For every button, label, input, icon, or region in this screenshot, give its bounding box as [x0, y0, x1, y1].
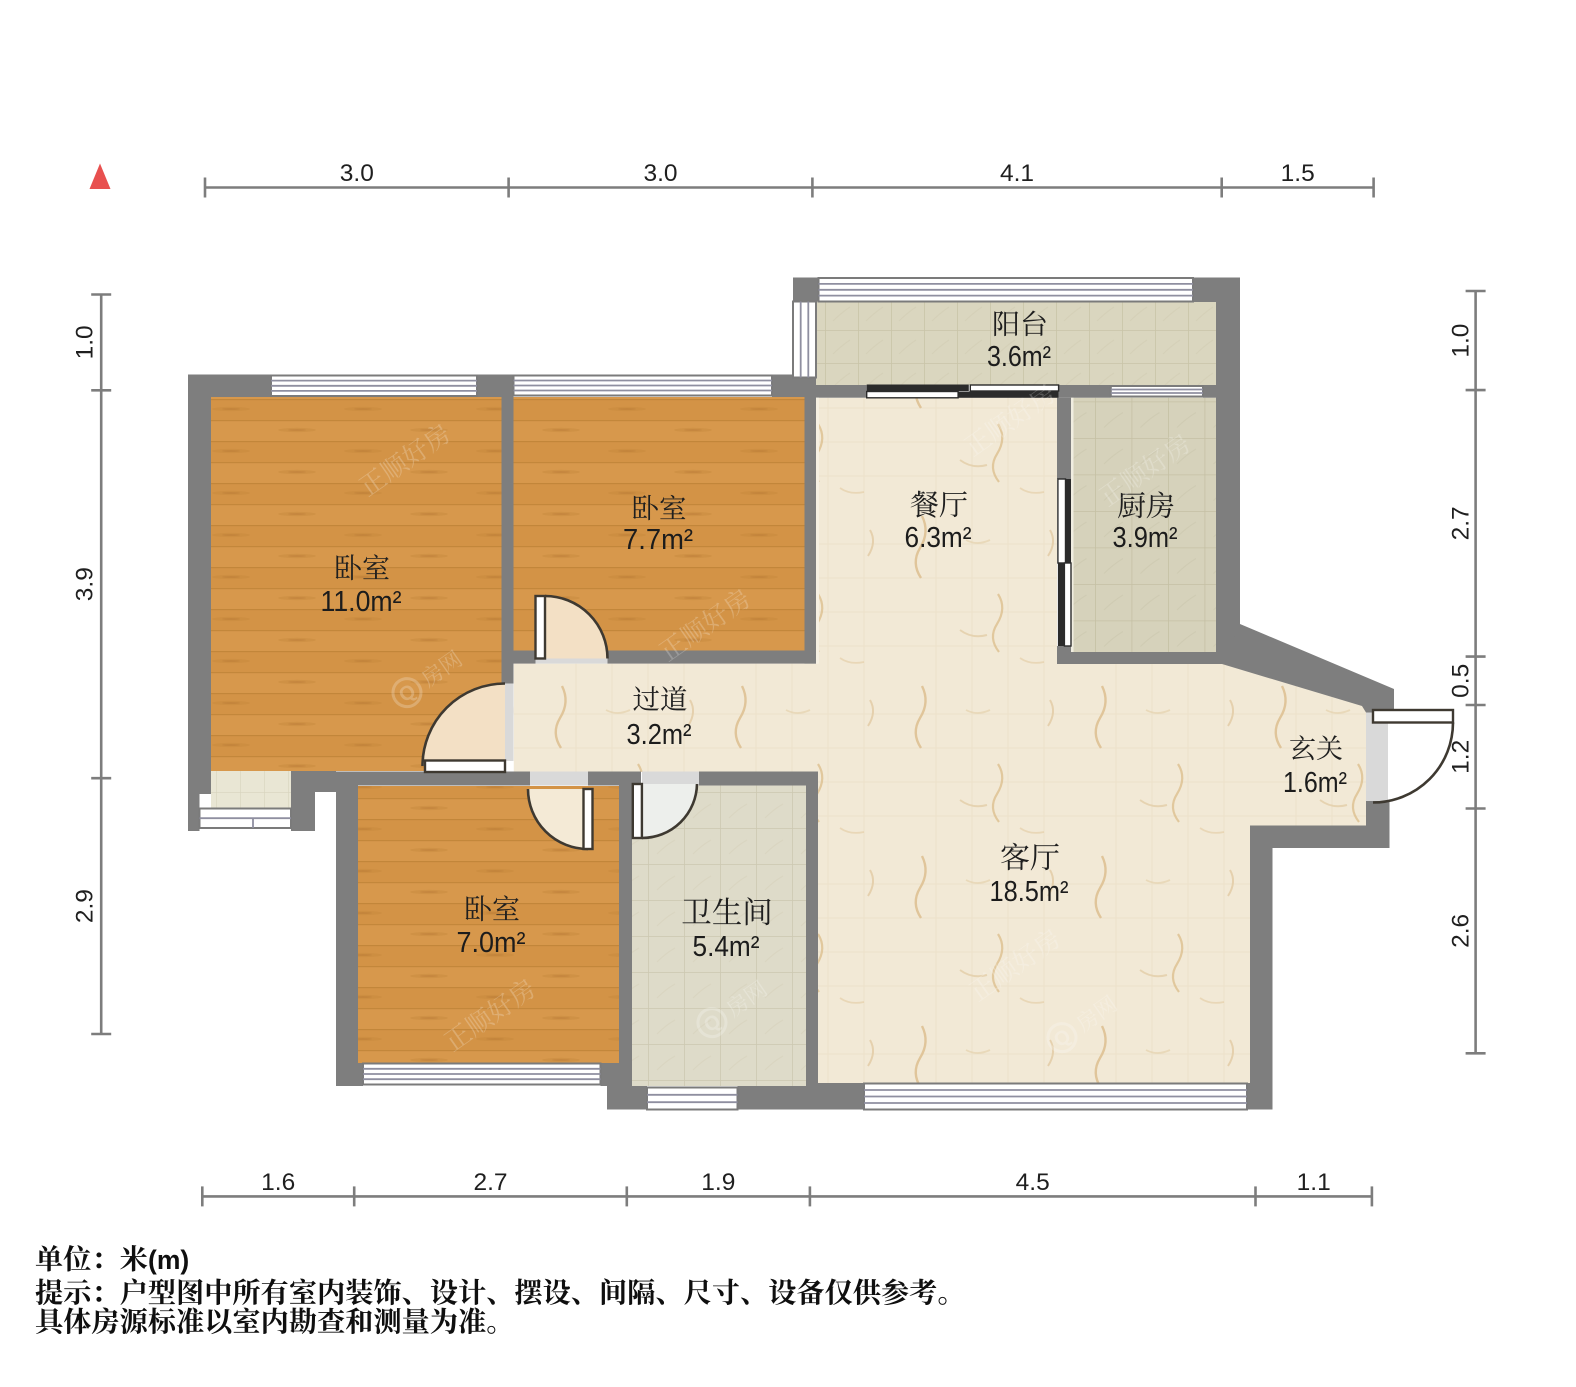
- svg-text:3.0: 3.0: [340, 160, 374, 187]
- svg-text:2.7: 2.7: [473, 1169, 507, 1196]
- svg-text:2.9: 2.9: [71, 889, 98, 923]
- svg-text:18.5m²: 18.5m²: [990, 876, 1069, 908]
- svg-text:4.5: 4.5: [1016, 1169, 1050, 1196]
- svg-text:11.0m²: 11.0m²: [321, 586, 402, 618]
- svg-text:1.2: 1.2: [1447, 740, 1474, 774]
- svg-text:1.0: 1.0: [1447, 324, 1474, 358]
- svg-text:3.9m²: 3.9m²: [1113, 522, 1178, 554]
- svg-text:3.2m²: 3.2m²: [627, 719, 692, 751]
- svg-text:5.4m²: 5.4m²: [693, 931, 760, 963]
- svg-text:4.1: 4.1: [1000, 160, 1034, 187]
- svg-text:1.6: 1.6: [261, 1169, 295, 1196]
- svg-text:(m): (m): [148, 1245, 189, 1275]
- svg-text:0.5: 0.5: [1447, 664, 1474, 698]
- svg-text:1.6m²: 1.6m²: [1283, 767, 1347, 799]
- svg-text:7.0m²: 7.0m²: [457, 927, 526, 959]
- svg-text:1.5: 1.5: [1281, 160, 1315, 187]
- svg-text:1.9: 1.9: [701, 1169, 735, 1196]
- svg-text:3.6m²: 3.6m²: [987, 341, 1051, 373]
- svg-text:1.0: 1.0: [71, 325, 98, 359]
- svg-text:1.1: 1.1: [1297, 1169, 1331, 1196]
- svg-text:3.9: 3.9: [71, 567, 98, 601]
- svg-text:7.7m²: 7.7m²: [623, 524, 693, 556]
- svg-text:6.3m²: 6.3m²: [905, 522, 972, 554]
- svg-text:2.7: 2.7: [1447, 506, 1474, 540]
- svg-text:2.6: 2.6: [1447, 914, 1474, 948]
- svg-text:3.0: 3.0: [643, 160, 677, 187]
